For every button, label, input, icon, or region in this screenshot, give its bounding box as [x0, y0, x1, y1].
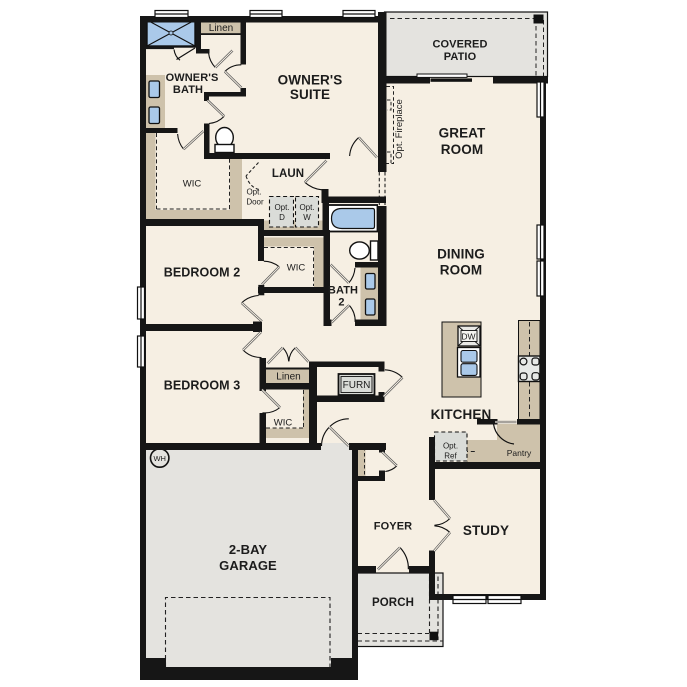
svg-text:DINING: DINING — [437, 247, 485, 262]
svg-text:KITCHEN: KITCHEN — [431, 407, 492, 422]
svg-text:Opt.: Opt. — [443, 442, 458, 451]
svg-text:BEDROOM 3: BEDROOM 3 — [164, 379, 241, 393]
svg-text:FOYER: FOYER — [374, 521, 412, 533]
svg-text:Ref: Ref — [444, 452, 457, 461]
svg-text:STUDY: STUDY — [463, 523, 509, 538]
svg-text:SUITE: SUITE — [290, 87, 330, 102]
svg-text:Door: Door — [246, 198, 264, 207]
svg-text:PORCH: PORCH — [372, 597, 414, 609]
svg-text:WIC: WIC — [183, 179, 202, 190]
svg-text:WH: WH — [153, 454, 166, 463]
svg-text:Opt.: Opt. — [274, 203, 289, 212]
svg-text:2: 2 — [338, 297, 344, 309]
svg-text:Opt.: Opt. — [299, 203, 314, 212]
svg-text:D: D — [279, 213, 285, 222]
svg-text:ROOM: ROOM — [441, 142, 483, 157]
svg-text:DW: DW — [461, 332, 475, 342]
svg-text:ROOM: ROOM — [440, 263, 482, 278]
svg-text:Opt.: Opt. — [246, 188, 261, 197]
svg-text:GARAGE: GARAGE — [219, 558, 277, 573]
svg-text:LAUN: LAUN — [272, 168, 304, 180]
svg-text:PATIO: PATIO — [444, 51, 477, 63]
svg-text:BATH: BATH — [328, 285, 358, 297]
svg-text:2-BAY: 2-BAY — [229, 542, 268, 557]
svg-text:Opt. Fireplace: Opt. Fireplace — [394, 99, 405, 159]
svg-text:BEDROOM 2: BEDROOM 2 — [164, 266, 241, 280]
svg-text:Pantry: Pantry — [507, 448, 532, 458]
svg-text:Linen: Linen — [209, 23, 233, 34]
svg-text:BATH: BATH — [173, 84, 203, 96]
svg-text:OWNER'S: OWNER'S — [278, 73, 343, 88]
svg-text:WIC: WIC — [287, 263, 306, 274]
svg-text:OWNER'S: OWNER'S — [166, 72, 219, 84]
svg-text:WIC: WIC — [274, 418, 293, 429]
svg-text:Linen: Linen — [276, 372, 300, 383]
svg-text:W: W — [303, 213, 311, 222]
svg-text:COVERED: COVERED — [432, 39, 487, 51]
svg-text:FURN: FURN — [343, 380, 371, 391]
svg-text:GREAT: GREAT — [439, 126, 486, 141]
